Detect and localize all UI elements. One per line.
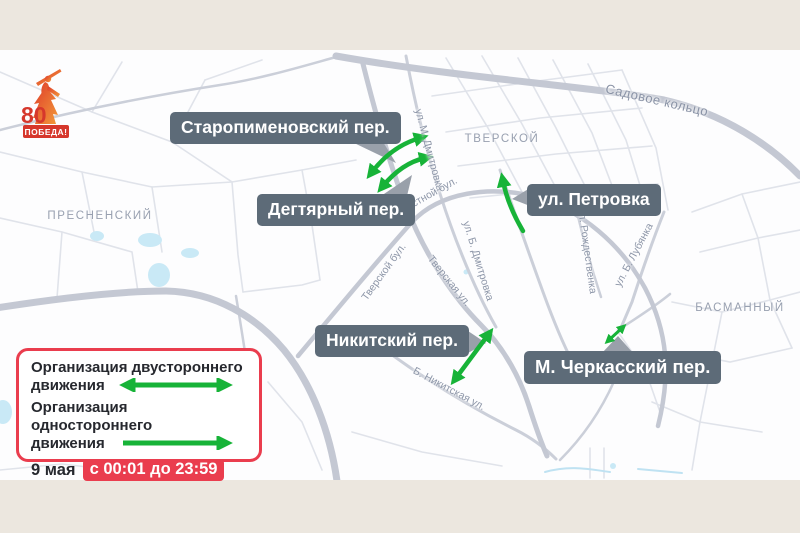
district-presnensky: ПРЕСНЕНСКИЙ [47, 210, 152, 222]
callout-petrovka: ул. Петровка [527, 184, 661, 216]
legend-date: 9 мая [31, 461, 76, 480]
callout-staropimenovsky: Старопименовский пер. [170, 112, 401, 144]
legend-two-way-text-2: движения [31, 377, 105, 394]
callout-degtyarny: Дегтярный пер. [257, 194, 415, 226]
legend-two-way: Организация двустороннего движения [31, 359, 247, 395]
legend-one-way-text-1: Организация одностороннего [31, 399, 152, 434]
callout-cherkassky: М. Черкасский пер. [524, 351, 721, 384]
legend-two-way-text-1: Организация двустороннего [31, 359, 243, 376]
victory-80-logo: 80 ПОБЕДА! [20, 66, 70, 144]
legend-box: Организация двустороннего движения Орган… [16, 348, 262, 462]
legend-one-way: Организация одностороннего движения [31, 399, 247, 453]
callout-nikitsky: Никитский пер. [315, 325, 469, 357]
top-banner [0, 0, 800, 50]
legend-one-way-text-2: движения [31, 435, 105, 452]
legend-time-badge: с 00:01 до 23:59 [83, 459, 225, 481]
logo-pobeda: ПОБЕДА! [24, 127, 67, 137]
district-basmanny: БАСМАННЫЙ [695, 302, 785, 314]
legend-date-row: 9 мая с 00:01 до 23:59 [31, 459, 247, 481]
two-way-arrow-icon [115, 378, 237, 392]
logo-80: 80 [21, 102, 47, 128]
bottom-banner [0, 480, 800, 533]
traffic-infographic: 80 ПОБЕДА! ПРЕСНЕНСКИЙ ТВЕРСКОЙ БАСМАННЫ… [0, 0, 800, 533]
one-way-arrow-icon [115, 436, 237, 450]
district-tverskoy: ТВЕРСКОЙ [465, 133, 540, 145]
